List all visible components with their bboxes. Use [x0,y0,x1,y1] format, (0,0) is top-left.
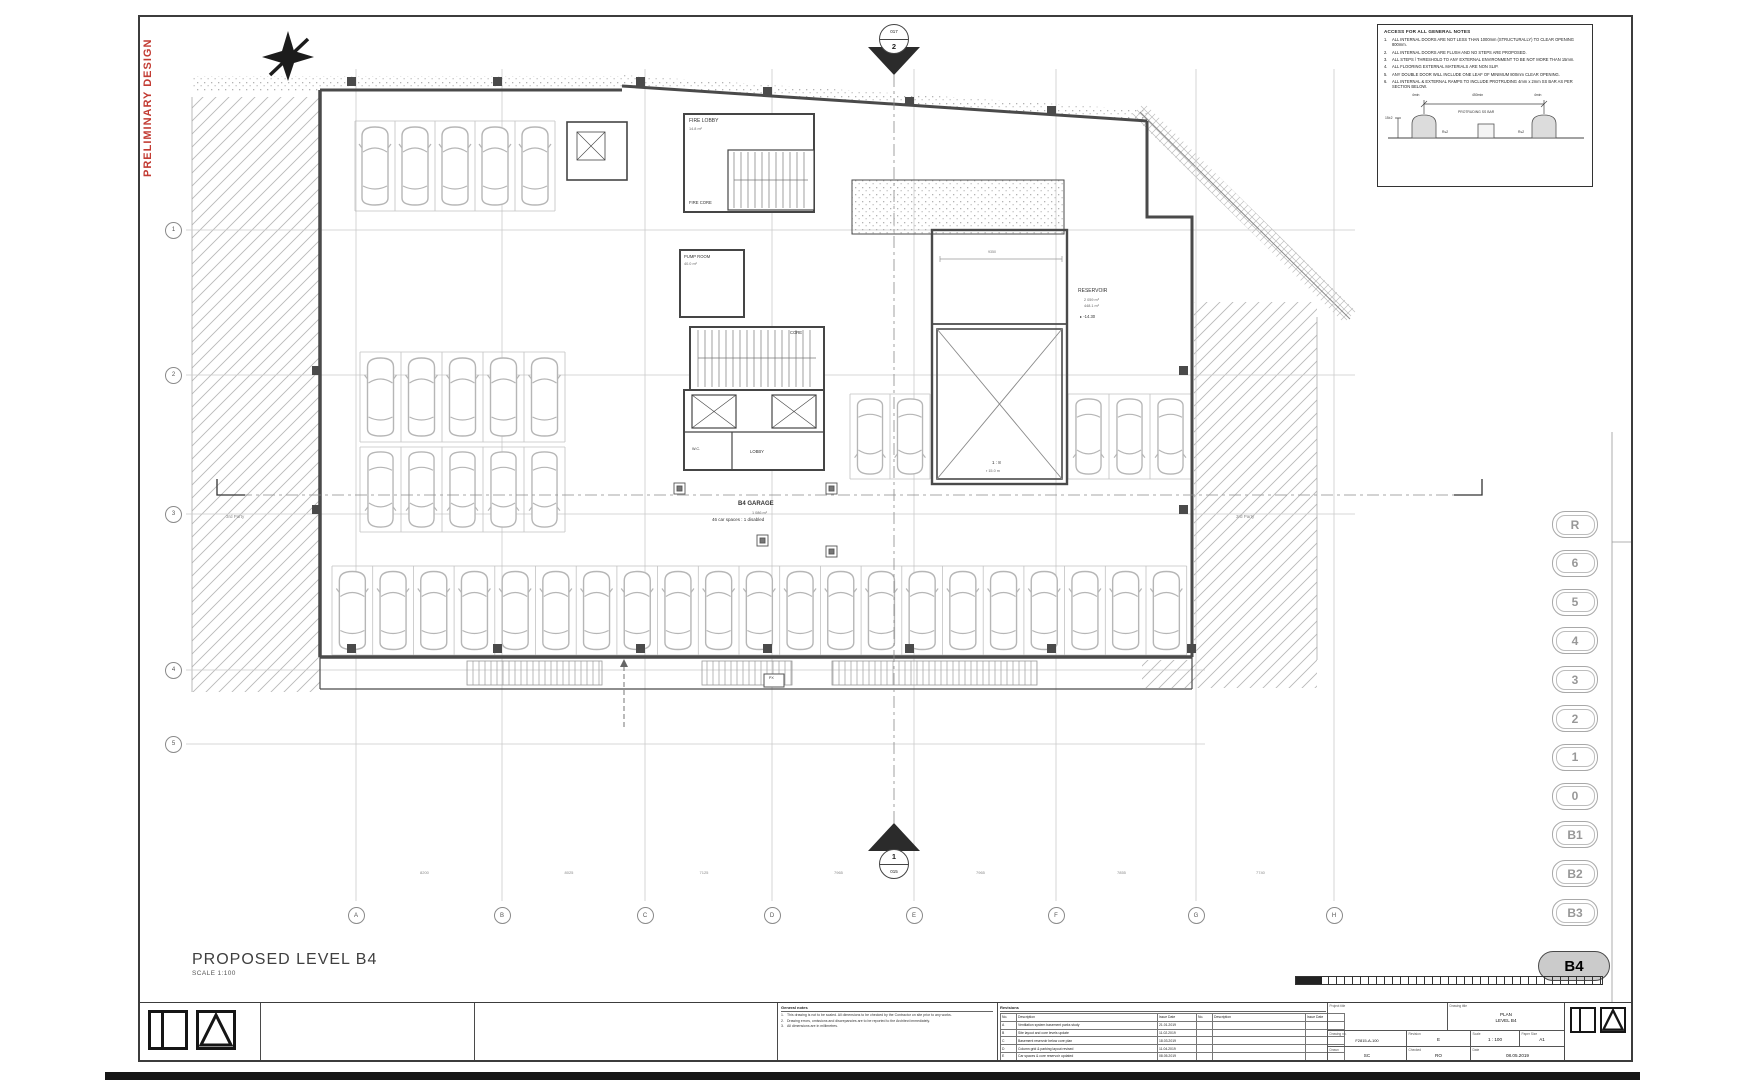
parking-row [1068,394,1191,479]
grid-bubble-col-G: G [1188,907,1205,924]
revision-value: E [1407,1034,1470,1046]
reservoir-ramp [852,180,1067,484]
plan-label: PUMP ROOM [684,255,710,260]
titleblock-note: 2.Drawing errors, omissions and discrepa… [781,1019,993,1024]
note-item: 6.ALL INTERNAL & EXTERNAL RAMPS TO INCLU… [1384,79,1586,90]
section-triangle-icon [868,823,920,851]
core-rooms [567,114,824,470]
grid-bubble-row-5: 5 [165,736,182,753]
titleblock-note: 1.This drawing is not to be scaled. All … [781,1013,993,1018]
project-info-grid: Project title Drawing title PLANLEVEL B4… [1327,1003,1564,1062]
drawn-value: SC [1328,1050,1406,1062]
drawing-title-value: PLANLEVEL B4 [1448,1006,1564,1030]
level-button-2[interactable]: 2 [1552,705,1598,732]
drawing-number: F2815-A-100 [1328,1034,1406,1046]
level-button-6[interactable]: 6 [1552,550,1598,577]
level-button-3[interactable]: 3 [1552,666,1598,693]
section-sheet-ref: 015 [880,865,908,879]
revision-row: AVentilation system basement parks study… [1001,1021,1345,1029]
drawing-sheet: PRELIMINARY DESIGN 017 2 1 015 ACCESS FO… [138,15,1633,1062]
detail-label: PROTRUDING SS BAR [1458,110,1494,114]
detail-height-label: 15±2 [1385,116,1393,120]
section-number: 2 [880,40,908,54]
plan-label: FIRE LOBBY [689,119,718,125]
dimension-label: 8200 [420,870,429,875]
note-item: 2.ALL INTERNAL DOORS ARE FLUSH AND NO ST… [1384,50,1586,55]
section-sheet-ref: 017 [880,25,908,40]
plan-label: 40.0 m² [684,262,697,266]
plan-label: CORE [790,331,802,336]
plan-label: 9350 [988,251,996,255]
notes-title: ACCESS FOR ALL GENERAL NOTES [1384,29,1586,34]
grid-bubble-col-B: B [494,907,511,924]
preliminary-design-stamp: PRELIMINARY DESIGN [142,27,154,177]
level-button-B1[interactable]: B1 [1552,821,1598,848]
titleblock-general-notes: General notes 1.This drawing is not to b… [781,1005,993,1030]
plan-label: LOBBY [750,450,764,455]
plan-label: 1 086 m² [752,511,767,515]
checked-value: RO [1407,1050,1470,1062]
paper-size-value: A1 [1520,1034,1564,1046]
grid-bubble-col-E: E [906,907,923,924]
section-marker-top: 017 2 [868,24,920,82]
plan-label: 448.1 m² [1084,304,1099,308]
project-title-label: Project title [1330,1004,1346,1008]
level-selector: R6543210B1B2B3B4 [1538,511,1626,989]
plan-label: 3rd Party [1236,515,1254,520]
revision-row: DColumn grid & parking layout revised11.… [1001,1045,1345,1053]
plan-label: r 15.0 m [986,469,1000,473]
revision-row: ECar spaces & core reservoir updated08.0… [1001,1052,1345,1060]
company-logo-icon [148,1010,188,1050]
plan-label: 2 059 m³ [1084,298,1099,302]
dimension-label: 7965 [976,870,985,875]
revision-row: BSite layout and core levels update11.02… [1001,1029,1345,1037]
note-item: 5.ANY DOUBLE DOOR WILL INCLUDE ONE LEAF … [1384,72,1586,77]
detail-side-label: R≤2 [1442,130,1448,134]
general-notes-box: ACCESS FOR ALL GENERAL NOTES 1.ALL INTER… [1377,24,1593,187]
drawing-viewer: PRELIMINARY DESIGN 017 2 1 015 ACCESS FO… [0,0,1755,1080]
section-marker-bottom: 1 015 [868,821,920,879]
detail-dim: 450min [1472,93,1483,97]
grid-bubble-row-3: 3 [165,506,182,523]
north-arrow-icon [258,29,320,81]
level-button-5[interactable]: 5 [1552,589,1598,616]
parking-row [850,394,930,479]
level-button-R[interactable]: R [1552,511,1598,538]
parking-row [332,566,1187,655]
plan-label: 1 : 8 [992,461,1001,466]
bottom-bar [105,1072,1640,1080]
level-button-1[interactable]: 1 [1552,744,1598,771]
logos [148,1010,236,1050]
sheet-title: PROPOSED LEVEL B4 [192,951,377,969]
note-item: 1.ALL INTERNAL DOORS ARE NOT LESS THAN 1… [1384,37,1586,48]
scale-value: 1 : 100 [1471,1034,1519,1046]
plan-label: ▸ -14.30 [1080,315,1095,320]
dimension-label: 7740 [1256,870,1265,875]
detail-dim: 4min [1534,93,1541,97]
plan-label: FIRE CORE [689,201,712,206]
parking-row [360,447,565,532]
plan-label: W.C. [692,447,700,451]
scale-bar [1295,976,1603,985]
grid-bubble-col-A: A [348,907,365,924]
detail-dim: 4min [1412,93,1419,97]
threshold-detail: 4min 450min 4min PROTRUDING SS BAR R≤2 R… [1384,92,1586,150]
detail-side-label: R≤2 [1518,130,1524,134]
grid-bubble-col-H: H [1326,907,1343,924]
company-logo-icon [1570,1007,1596,1033]
plan-label: PX [769,677,774,681]
architect-logo-icon [196,1010,236,1050]
grid-bubble-col-C: C [637,907,654,924]
dimension-label: 7125 [700,870,709,875]
grid-bubble-col-F: F [1048,907,1065,924]
level-button-B2[interactable]: B2 [1552,860,1598,887]
grid-bubble-row-1: 1 [165,222,182,239]
level-button-0[interactable]: 0 [1552,783,1598,810]
date-value: 08.05.2019 [1471,1050,1564,1062]
revisions-table: Revisions No.DescriptionIssue DateNo.Des… [1000,1005,1326,1061]
plan-label: 46 car spaces : 1 disabled [712,518,764,523]
grid-bubble-col-D: D [764,907,781,924]
note-item: 4.ALL FLOORING EXTERNAL MATERIALS ARE NO… [1384,64,1586,69]
grid-bubble-row-2: 2 [165,367,182,384]
title-block: General notes 1.This drawing is not to b… [140,1002,1633,1062]
level-button-B3[interactable]: B3 [1552,899,1598,926]
dimension-label: 7965 [834,870,843,875]
plan-label: 14.8 m² [689,127,702,131]
dimension-label: 8025 [565,870,574,875]
sheet-scale: SCALE 1:100 [192,970,377,977]
revisions-header: Revisions [1000,1005,1326,1012]
level-button-4[interactable]: 4 [1552,627,1598,654]
plan-label: B4 GARAGE [738,501,774,508]
titleblock-note: 3.All dimensions are in millimetres. [781,1024,993,1029]
section-number: 1 [880,850,908,865]
sheet-title-block: PROPOSED LEVEL B4 SCALE 1:100 [192,951,377,977]
architect-logo-icon [1600,1007,1626,1033]
note-item: 3.ALL STEPS / THRESHOLD TO ANY EXTERNAL … [1384,57,1586,62]
dimension-label: 7855 [1117,870,1126,875]
general-notes-header: General notes [781,1005,993,1012]
parking-row [355,121,555,211]
revision-row: CBasement reservoir below core plan18.03… [1001,1037,1345,1045]
grid-bubble-row-4: 4 [165,662,182,679]
parking-row [360,352,565,442]
titleblock-logos [1570,1007,1626,1033]
plan-label: RESERVOIR [1078,289,1107,295]
plan-label: 3rd Party [226,515,244,520]
